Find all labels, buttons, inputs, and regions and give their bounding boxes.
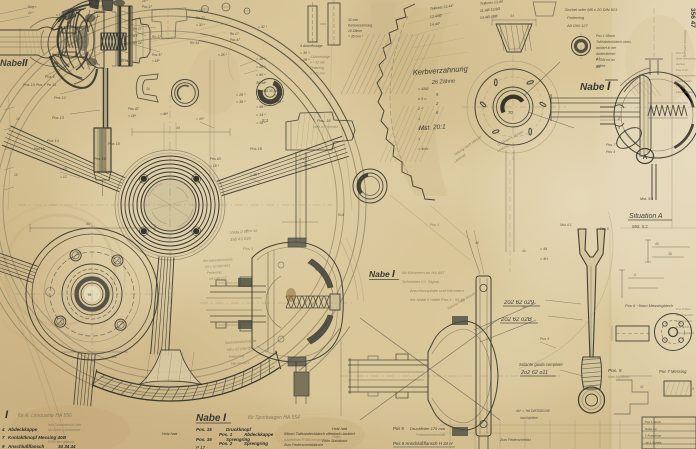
svg-text:Pos 19: Pos 19: [94, 157, 107, 161]
svg-text:Druckfeder 175 mm: Druckfeder 175 mm: [410, 426, 446, 431]
svg-text:A9 DIN 127: A9 DIN 127: [566, 23, 588, 28]
svg-text:= 14 *: = 14 *: [256, 113, 266, 117]
svg-text:mit 1 Schale: mit 1 Schale: [645, 440, 662, 444]
svg-text:Pos 6 Glied: Pos 6 Glied: [676, 325, 692, 329]
svg-text:bei Anlief a Antriebsteil: bei Anlief a Antriebsteil: [48, 428, 80, 432]
svg-text:Pos 23: Pos 23: [94, 5, 104, 9]
svg-text:Ro 21: Ro 21: [196, 16, 205, 20]
svg-text:Ro 14: Ro 14: [190, 41, 199, 45]
svg-text:36: 36: [668, 252, 672, 256]
svg-text:5 2 6: 5 2 6: [418, 127, 427, 131]
svg-text:= 18 *: = 18 *: [256, 57, 266, 61]
svg-text:6: 6: [634, 273, 636, 277]
svg-text:a 4: a 4: [133, 34, 138, 38]
svg-text:Zum Federscheibkldraht: Zum Federscheibkldraht: [283, 443, 324, 447]
svg-text:Messingblech: Messingblech: [676, 331, 695, 335]
svg-text:Pos 1 Stück: Pos 1 Stück: [645, 420, 662, 424]
svg-text:2o2 62 o2B: 2o2 62 o2B: [500, 317, 532, 323]
svg-text:18: 18: [14, 173, 18, 177]
svg-text:Federscheibenkraft: Federscheibenkraft: [416, 433, 446, 437]
svg-text:Ro 14: Ro 14: [133, 41, 142, 45]
svg-text:für Sportwagen HA 554: für Sportwagen HA 554: [248, 415, 300, 421]
svg-text:34: 34: [510, 14, 514, 18]
svg-text:Pos 7 Messing: Pos 7 Messing: [659, 369, 687, 374]
svg-text:Pos 18: Pos 18: [250, 147, 263, 151]
svg-text:= 18*: = 18*: [152, 59, 160, 63]
svg-text:Pos 12: Pos 12: [54, 96, 67, 100]
svg-text:34 34 44: 34 34 44: [58, 444, 76, 449]
svg-text:Pos 17: Pos 17: [142, 5, 152, 9]
svg-text:Ro 17: Ro 17: [230, 32, 239, 36]
svg-text:Nabe I m: Nabe I m: [645, 427, 658, 431]
svg-text:a Antwerdel Fl 666 mm postard: a Antwerdel Fl 666 mm postard: [284, 438, 328, 442]
svg-text:= 18*: = 18*: [128, 114, 137, 118]
svg-text:Federring: Federring: [567, 15, 585, 20]
svg-text:= 4cm: = 4cm: [418, 147, 428, 151]
svg-text:8: 8: [692, 387, 694, 391]
svg-text:Pos 1: Pos 1: [45, 75, 55, 79]
svg-text:24 *: 24 *: [141, 0, 148, 3]
svg-text:I: I: [392, 269, 395, 280]
svg-text:1: 1: [618, 135, 620, 139]
svg-text:Holz hart: Holz hart: [162, 432, 178, 436]
svg-text:70: 70: [508, 110, 513, 115]
svg-text:4o* = Teil DIESSELBE: 4o* = Teil DIESSELBE: [516, 409, 551, 413]
svg-text:32 mm: 32 mm: [348, 18, 358, 22]
svg-text:2o2 62 o11: 2o2 62 o11: [520, 370, 548, 376]
svg-text:1: 1: [418, 117, 420, 121]
svg-text:Heisn: Heisn: [94, 0, 102, 3]
svg-text:24 *: 24 *: [27, 11, 34, 15]
svg-text:Pos 8 Dew: Pos 8 Dew: [676, 307, 691, 311]
svg-text:Nabe: Nabe: [369, 269, 390, 279]
svg-text:Nabe: Nabe: [196, 413, 221, 424]
svg-text:lackiert in der: lackiert in der: [596, 46, 617, 50]
svg-text:Pos 10 Pos 7 Po 11: Pos 10 Pos 7 Po 11: [23, 83, 56, 87]
svg-text:Messingschiene: Messingschiene: [676, 73, 696, 77]
svg-text:Hole a Trockelluf: Hole a Trockelluf: [313, 125, 339, 129]
svg-text:Abziehleder: Abziehleder: [675, 79, 693, 83]
svg-text:= 18: = 18: [60, 167, 67, 171]
svg-text:Mst. 5:1: Mst. 5:1: [640, 197, 654, 201]
svg-text:··: ··: [544, 427, 546, 431]
svg-text:Pos. 2: Pos. 2: [219, 441, 233, 446]
svg-text:49: 49: [596, 65, 600, 69]
svg-text:= 14 *: = 14 *: [274, 93, 284, 97]
svg-text:··: ··: [484, 427, 486, 431]
svg-text:A: A: [643, 154, 648, 161]
svg-text:Abdeckkappe: Abdeckkappe: [7, 427, 38, 432]
svg-text:··: ··: [464, 427, 466, 431]
svg-text:= 24 *: = 24 *: [196, 9, 205, 13]
svg-text:nachstellen!: nachstellen!: [520, 416, 538, 420]
svg-text:38,44*: 38,44*: [256, 81, 267, 85]
svg-text:Nabe: Nabe: [580, 82, 605, 93]
svg-text:Mst 4:1: Mst 4:1: [560, 223, 572, 227]
svg-text:Pos 47: Pos 47: [230, 38, 240, 42]
svg-text:2 *: 2 *: [417, 107, 423, 111]
svg-text:Pos 1 65mm: Pos 1 65mm: [596, 34, 615, 38]
svg-text:Sprengring: Sprengring: [244, 441, 268, 446]
svg-text:Pos 7: Pos 7: [606, 143, 616, 147]
svg-text:Pos 48: Pos 48: [246, 229, 257, 233]
svg-text:Solante guida complete: Solante guida complete: [519, 362, 563, 367]
svg-text:= 18 *: = 18 *: [256, 97, 266, 101]
svg-text:Pos 5: Pos 5: [600, 227, 609, 231]
svg-text:Pos. 16: Pos. 16: [317, 118, 331, 123]
svg-text:= 30 *: = 30 *: [300, 51, 310, 55]
svg-text:356 47: 356 47: [689, 8, 696, 28]
svg-text:felin Tolleabdeckbl ofen: felin Tolleabdeckbl ofen: [48, 423, 81, 427]
svg-text:Schreiben f.h. Signal-: Schreiben f.h. Signal-: [402, 279, 441, 284]
svg-text:··: ··: [584, 427, 586, 431]
svg-text:Pos 1: Pos 1: [243, 246, 253, 251]
svg-text:= 28 *: = 28 *: [236, 93, 246, 97]
svg-text:P 17: P 17: [196, 445, 206, 449]
svg-text:= 32 *: = 32 *: [258, 25, 268, 29]
svg-text:43: 43: [596, 57, 600, 61]
svg-text:40: 40: [655, 242, 659, 246]
svg-text:··: ··: [624, 427, 626, 431]
svg-text:Nabenschild: Nabenschild: [676, 313, 693, 317]
svg-text:4o: 4o: [522, 249, 526, 253]
svg-text:Tolleabdeckblech oben-: Tolleabdeckblech oben-: [596, 40, 633, 44]
svg-text:Zum Federscheibkl: Zum Federscheibkl: [499, 438, 531, 442]
svg-text:6mm My-Blech: 6mm My-Blech: [608, 375, 629, 379]
svg-text:Pos 14: Pos 14: [47, 139, 59, 143]
svg-text:2: 2: [617, 117, 620, 121]
svg-text:49: 49: [176, 126, 180, 130]
svg-text:= 48 *: = 48 *: [250, 173, 260, 177]
svg-text:= 60 *: = 60 *: [256, 73, 266, 77]
svg-text:= 35 mm *: = 35 mm *: [348, 35, 364, 39]
svg-text:= 4H: = 4H: [540, 257, 548, 261]
svg-text:Pos 5a: Pos 5a: [676, 85, 686, 89]
svg-text:··: ··: [524, 427, 526, 431]
svg-text:Pos 1: Pos 1: [430, 223, 439, 227]
svg-text:Pos 6 ~5mm Messingblech: Pos 6 ~5mm Messingblech: [625, 303, 674, 308]
svg-text:= 48Ø: = 48Ø: [418, 87, 429, 91]
svg-text:= 48 *: = 48 *: [274, 100, 284, 104]
svg-text:S:4: S:4: [338, 212, 345, 217]
svg-text:o = 11 mm: o = 11 mm: [310, 72, 325, 76]
svg-text:= 12: = 12: [60, 175, 67, 179]
svg-text:34: 34: [146, 87, 150, 91]
svg-text:42: 42: [640, 385, 644, 389]
svg-text:Ro 17: Ro 17: [152, 35, 161, 39]
svg-text:40: 40: [475, 241, 479, 245]
svg-text:Pos 43: Pos 43: [210, 157, 221, 161]
svg-text:Anschlussplatte und Klimmern: Anschlussplatte und Klimmern: [409, 288, 465, 293]
svg-text:Rog =: Rog =: [28, 5, 37, 9]
svg-text:81: 81: [88, 293, 92, 297]
svg-text:Kerbverzahnung: Kerbverzahnung: [348, 24, 372, 28]
svg-text:= 28 *: = 28 *: [256, 65, 266, 69]
svg-text:= 18 *: = 18 *: [256, 121, 266, 125]
svg-text:Pos 13: Pos 13: [52, 116, 65, 120]
svg-text:Holz hart: Holz hart: [332, 427, 348, 431]
svg-text:Ro 11: Ro 11: [120, 59, 128, 63]
svg-text:Situation A: Situation A: [629, 213, 663, 220]
svg-text:26 Zähne: 26 Zähne: [347, 29, 362, 33]
svg-text:Dew Verschluss-: Dew Verschluss-: [676, 57, 696, 61]
svg-text:Pos 2: Pos 2: [676, 51, 684, 55]
svg-text:Anschlußflansch: Anschlußflansch: [7, 444, 45, 449]
svg-text:Nabe: Nabe: [0, 58, 22, 68]
svg-text:··: ··: [564, 427, 566, 431]
svg-text:= 40*: = 40*: [196, 117, 205, 121]
svg-text:4: 4: [1, 427, 5, 432]
svg-text:4o: 4o: [522, 305, 526, 309]
svg-text:4 Abmessbige: 4 Abmessbige: [310, 55, 330, 59]
svg-text:Pos 47: Pos 47: [152, 53, 162, 57]
svg-text:Abdeckblech: Abdeckblech: [595, 52, 616, 56]
svg-text:Pos 8 Anschlußflansch H 34: Pos 8 Anschlußflansch H 34 H: [393, 441, 453, 446]
svg-text:4 Abmessbige: 4 Abmessbige: [300, 44, 323, 48]
svg-text:65mm Tolleabdeckblech offenb: 65mm Tolleabdeckblech offenbein-lackiert: [284, 432, 356, 436]
svg-text:Pos 5: Pos 5: [540, 337, 549, 341]
svg-text:Federring: Federring: [207, 270, 222, 275]
svg-text:··: ··: [504, 427, 506, 431]
svg-text:Sockel oder M6 x 20 DIN 913: Sockel oder M6 x 20 DIN 913: [565, 7, 618, 12]
svg-text:= 49: = 49: [540, 247, 547, 251]
svg-text:Pos. 16: Pos. 16: [196, 437, 212, 442]
svg-text:84: 84: [112, 354, 117, 359]
svg-text:4: 4: [618, 126, 620, 130]
svg-text:= 48 *: = 48 *: [256, 105, 266, 109]
svg-text:2o2 62 o29: 2o2 62 o29: [503, 300, 535, 306]
svg-text:II: II: [22, 58, 28, 69]
svg-text:o 5 o: o 5 o: [418, 97, 426, 101]
svg-text:Federring: Federring: [310, 66, 324, 70]
svg-text:··: ··: [604, 427, 606, 431]
svg-text:= 48*: = 48*: [160, 112, 169, 116]
svg-text:o = 32 mm: o = 32 mm: [310, 61, 325, 65]
svg-text:Pos 18: Pos 18: [108, 142, 121, 146]
svg-text:= 28 *: = 28 *: [300, 58, 310, 62]
svg-text:Pos 42: Pos 42: [128, 107, 139, 111]
svg-text:deckel: deckel: [676, 62, 685, 66]
svg-text:16: 16: [16, 117, 20, 121]
svg-text:1 Auswbüge: 1 Auswbüge: [645, 434, 662, 438]
svg-text:DIN 936: DIN 936: [94, 10, 106, 14]
svg-text:Pos 15: Pos 15: [34, 147, 45, 151]
svg-text:1: 1: [418, 137, 420, 141]
svg-text:Messingblech: Messingblech: [676, 90, 695, 94]
svg-text:= 30 *: = 30 *: [196, 23, 205, 27]
svg-text:Mat.S.Glied: Mat.S.Glied: [676, 319, 692, 323]
svg-text:Pos 3 alt: Pos 3 alt: [676, 68, 688, 72]
svg-text:= 17 *: = 17 *: [300, 157, 310, 161]
svg-text:= 28 *: = 28 *: [218, 53, 227, 57]
svg-text:für Klimmern an HA 657: für Klimmern an HA 657: [402, 270, 445, 275]
svg-text:Pos 4: Pos 4: [606, 150, 615, 154]
svg-text:49: 49: [86, 221, 91, 226]
svg-text:= 18 *: = 18 *: [210, 164, 220, 168]
svg-text:Ro 17: Ro 17: [133, 27, 142, 31]
svg-text:Mst. 5:1: Mst. 5:1: [632, 224, 649, 229]
svg-text:Pos. 5: Pos. 5: [608, 368, 622, 374]
svg-text:o 18: o 18: [56, 13, 62, 17]
svg-text:Pos 9: Pos 9: [393, 426, 404, 431]
svg-text:für A. Limousine HA 556: für A. Limousine HA 556: [18, 413, 72, 419]
svg-text:= 38 *: = 38 *: [236, 100, 246, 104]
svg-text:Pos. 15: Pos. 15: [196, 427, 212, 432]
